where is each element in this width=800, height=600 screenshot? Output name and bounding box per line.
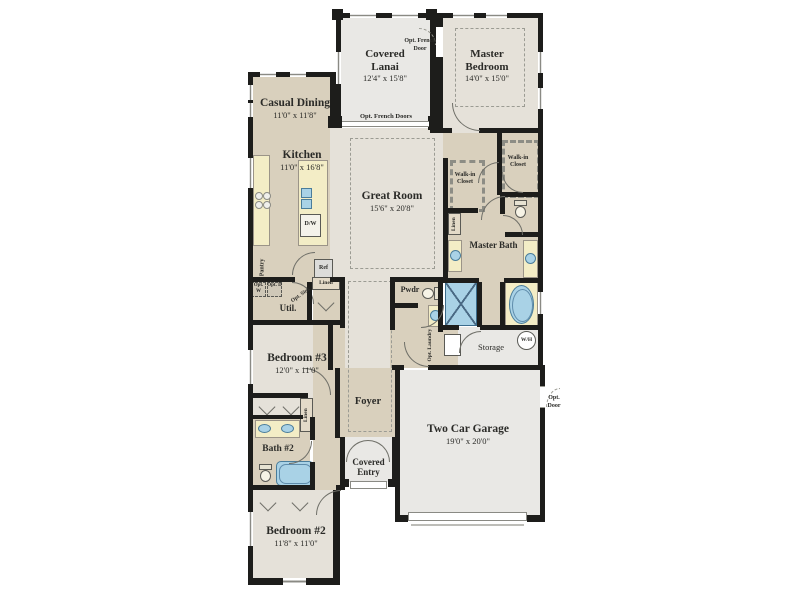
opt-french-door-label: Opt. French Door (404, 38, 436, 53)
room-name: Bedroom #3 (252, 352, 342, 365)
room-name: Util. (268, 303, 308, 313)
room-name: Foyer (338, 396, 398, 408)
window (538, 292, 543, 314)
wall (310, 462, 315, 485)
room-dims: 11'0" x 11'8" (250, 111, 340, 121)
room-dims: 12'0" x 11'0" (252, 366, 342, 376)
range-burner-icon (255, 201, 263, 209)
linen-label: Linen (303, 400, 309, 430)
storage-label: Storage (467, 343, 515, 353)
master-bath-label: Master Bath (466, 240, 521, 250)
pwdr-label: Pwdr (395, 285, 425, 294)
wall (504, 278, 543, 283)
room-name: Casual Dining (250, 97, 340, 110)
bedroom3-label: Bedroom #3 12'0" x 11'0" (252, 352, 342, 376)
wall (395, 303, 418, 308)
wall (527, 515, 545, 522)
kitchen-label: Kitchen 11'0" x 16'8" (262, 149, 342, 173)
wall (437, 128, 452, 133)
covered-entry-label: Covered Entry (342, 457, 395, 478)
lanai-post (426, 9, 437, 20)
room-name: Great Room (347, 190, 437, 203)
window (392, 13, 418, 18)
opt-washer-label: Opt. W (251, 283, 266, 295)
opt-door-label: Opt. Door (544, 395, 564, 410)
gallery-foyer-dashed-outline (348, 281, 392, 432)
window (453, 13, 474, 18)
toilet-bowl (260, 470, 271, 482)
master-bedroom-label: Master Bedroom 14'0" x 15'0" (452, 48, 522, 84)
wall (540, 408, 545, 520)
room-dims: 14'0" x 15'0" (452, 74, 522, 84)
refrigerator-label: Ref (314, 265, 333, 272)
walkin-closet-left-box (450, 160, 485, 212)
master-tub-inner (512, 289, 533, 322)
opt-french-doors-label: Opt. French Doors (346, 113, 426, 120)
wall (443, 158, 448, 278)
wall (480, 325, 543, 330)
range-burner-icon (255, 192, 263, 200)
sink-icon (281, 424, 294, 433)
sink-icon (525, 253, 536, 264)
floor-plan: D/W Ref Pantry Opt. W Opt. D Opt. Sink L… (0, 0, 800, 600)
room-dims: 15'6" x 20'8" (347, 204, 437, 214)
room-name: Master Bath (466, 240, 521, 250)
wall (477, 282, 482, 327)
shower-icon (445, 282, 477, 326)
wall (479, 128, 543, 133)
room-name: Master Bedroom (452, 48, 522, 73)
lanai-post (332, 9, 343, 20)
range-burner-icon (263, 201, 271, 209)
driveway-line (411, 524, 524, 526)
window (538, 52, 543, 73)
room-name: Two Car Garage (413, 423, 523, 436)
wall (443, 278, 479, 283)
wall (428, 365, 545, 370)
window (486, 13, 507, 18)
window (283, 578, 306, 585)
bath2-label: Bath #2 (253, 444, 303, 455)
room-dims: 11'0" x 16'8" (262, 163, 342, 173)
wall (538, 325, 543, 370)
toilet-icon (514, 200, 527, 219)
opt-dryer-label: Opt. D (267, 283, 282, 289)
wall (395, 515, 408, 522)
window (290, 72, 306, 77)
toilet-icon (259, 464, 272, 483)
walkin-closet-right-label: Walk-in Closet (503, 155, 533, 169)
wall (500, 282, 505, 327)
util-label: Util. (268, 303, 308, 313)
entry-step (350, 481, 387, 489)
bath2-tub-inner (279, 464, 312, 484)
wall (540, 370, 545, 386)
opt-laundry-label: Opt. Laundry (427, 324, 433, 366)
toilet-bowl (515, 206, 526, 218)
window (260, 72, 276, 77)
bedroom2-label: Bedroom #2 11'8" x 11'0" (251, 525, 341, 549)
wall (248, 393, 308, 398)
room-name: Covered Entry (342, 457, 395, 478)
wall (248, 277, 295, 282)
room-name: Bath #2 (253, 444, 303, 455)
room-name: Bedroom #2 (251, 525, 341, 538)
wall (390, 277, 443, 282)
wall (248, 72, 253, 580)
opt-french-doors-line (342, 121, 429, 127)
wall (248, 485, 315, 490)
room-name: Pwdr (395, 285, 425, 294)
window (350, 13, 376, 18)
linen-label: Linen (312, 280, 340, 286)
range-burner-icon (263, 192, 271, 200)
room-name: Storage (467, 343, 515, 353)
pantry-label: Pantry (260, 252, 267, 282)
wall (310, 417, 315, 440)
opt-french-door-gap (436, 27, 443, 57)
foyer-label: Foyer (338, 396, 398, 408)
great-room-label: Great Room 15'6" x 20'8" (347, 190, 437, 214)
room-dims: 11'8" x 11'0" (251, 539, 341, 549)
casual-dining-label: Casual Dining 11'0" x 11'8" (250, 97, 340, 121)
covered-lanai-label: Covered Lanai 12'4" x 15'8" (352, 48, 418, 84)
sink-icon (258, 424, 271, 433)
wall (248, 415, 303, 419)
garage-label: Two Car Garage 19'0" x 20'0" (413, 423, 523, 447)
wall (443, 325, 459, 330)
room-dims: 19'0" x 20'0" (413, 437, 523, 447)
water-heater-label: W/H (517, 337, 536, 343)
window (336, 52, 341, 84)
island-sink-icon (301, 188, 312, 198)
linen-label: Linen (451, 209, 457, 239)
window (538, 88, 543, 109)
walkin-closet-left-label: Walk-in Closet (451, 172, 479, 186)
wall (395, 370, 400, 518)
window (248, 158, 253, 188)
garage-door (408, 512, 527, 521)
island-sink-icon (301, 199, 312, 209)
dishwasher-label: D/W (300, 221, 321, 228)
wall (340, 479, 349, 487)
room-dims: 12'4" x 15'8" (352, 74, 418, 84)
sink-icon (450, 250, 461, 261)
room-name: Kitchen (262, 149, 342, 162)
